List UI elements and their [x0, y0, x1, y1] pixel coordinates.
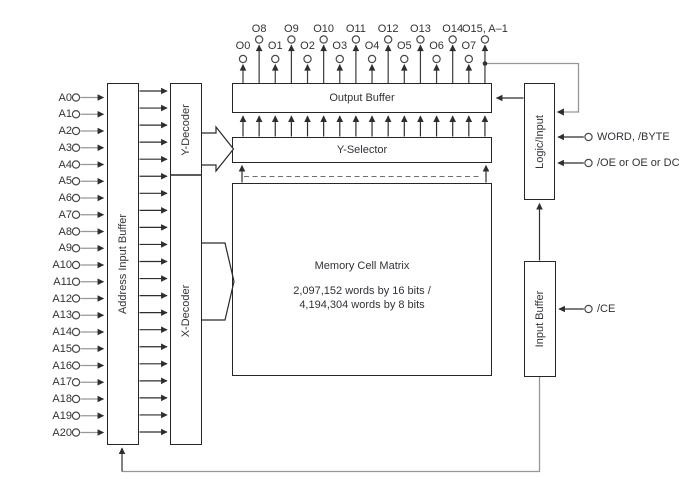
word-byte-label: WORD, /BYTE — [597, 131, 670, 143]
address-pin-label: A18 — [28, 393, 72, 405]
address-terminal-circle — [72, 111, 79, 118]
y-selector-block: Y-Selector — [232, 137, 492, 163]
address-terminal-circle — [72, 211, 79, 218]
output-terminal-circle — [368, 55, 375, 62]
buffer-to-decoder-arrows — [140, 91, 168, 432]
address-terminal-circle — [72, 412, 79, 419]
output-buffer-label: Output Buffer — [233, 84, 491, 112]
word-byte-terminal-circle — [585, 133, 592, 140]
address-pin-label: A3 — [28, 142, 72, 154]
output-pin-label: O7 — [437, 40, 501, 52]
address-terminal-circle — [72, 127, 79, 134]
address-pin-label: A20 — [28, 427, 72, 439]
address-terminal-circle — [72, 194, 79, 201]
output-pin-label: O15, A–1 — [453, 23, 517, 35]
address-pin-label: A0 — [28, 92, 72, 104]
address-pin-label: A6 — [28, 192, 72, 204]
output-terminal-circle — [401, 55, 408, 62]
address-pin-label: A2 — [28, 125, 72, 137]
output-terminal-circle — [304, 55, 311, 62]
junction-dot — [483, 61, 488, 66]
output-terminal-circle — [465, 55, 472, 62]
output-buffer-block: Output Buffer — [232, 83, 492, 113]
address-terminal-circle — [72, 362, 79, 369]
address-pin-label: A14 — [28, 326, 72, 338]
memory-capacity-text: 2,097,152 words by 16 bits / 4,194,304 w… — [233, 284, 491, 312]
oe-label: /OE or OE or DC — [597, 157, 680, 169]
address-pin-label: A19 — [28, 410, 72, 422]
address-pin-label: A12 — [28, 293, 72, 305]
memory-block-diagram: Address Input Buffer Y-Decoder X-Decoder… — [0, 0, 698, 486]
memory-cell-matrix-block: Memory Cell Matrix 2,097,152 words by 16… — [232, 183, 492, 376]
input-buffer-label: Input Buffer — [534, 291, 546, 348]
address-terminal-circle — [72, 278, 79, 285]
memory-capacity-line1: 2,097,152 words by 16 bits / — [233, 284, 491, 298]
address-pin-label: A17 — [28, 376, 72, 388]
ce-label: /CE — [597, 303, 615, 315]
address-terminal-circle — [72, 295, 79, 302]
address-pin-label: A13 — [28, 309, 72, 321]
address-pin-label: A4 — [28, 159, 72, 171]
address-pin-label: A11 — [28, 276, 72, 288]
output-terminal-circle — [239, 55, 246, 62]
decoder-block: Y-Decoder X-Decoder — [170, 83, 202, 445]
address-pin-label: A5 — [28, 175, 72, 187]
x-decoder-bus-arrow — [202, 243, 234, 320]
address-terminal-circle — [72, 245, 79, 252]
address-terminal-circle — [72, 379, 79, 386]
y-decoder-bus-arrow — [202, 127, 234, 171]
address-pin-label: A16 — [28, 360, 72, 372]
address-terminal-circle — [72, 261, 79, 268]
x-decoder-label: X-Decoder — [180, 285, 192, 338]
logic-input-label: Logic/Input — [534, 115, 546, 169]
address-pin-label: A10 — [28, 259, 72, 271]
output-terminal-circle — [433, 55, 440, 62]
address-input-wires — [72, 94, 103, 436]
address-terminal-circle — [72, 312, 79, 319]
ce-terminal-circle — [585, 305, 592, 312]
address-pin-label: A7 — [28, 209, 72, 221]
address-terminal-circle — [72, 345, 79, 352]
y-decoder-label: Y-Decoder — [180, 104, 192, 156]
memory-cell-matrix-title: Memory Cell Matrix — [233, 260, 491, 272]
output-terminal-circle — [272, 55, 279, 62]
oe-terminal-circle — [585, 159, 592, 166]
address-terminal-circle — [72, 395, 79, 402]
address-terminal-circle — [72, 161, 79, 168]
address-terminal-circle — [72, 429, 79, 436]
address-pin-label: A1 — [28, 108, 72, 120]
address-pin-label: A15 — [28, 343, 72, 355]
address-input-buffer-label: Address Input Buffer — [117, 214, 129, 314]
address-terminal-circle — [72, 178, 79, 185]
logic-input-block: Logic/Input — [524, 83, 555, 200]
address-pin-label: A9 — [28, 242, 72, 254]
address-terminal-circle — [72, 328, 79, 335]
output-terminal-circle — [336, 55, 343, 62]
address-terminal-circle — [72, 228, 79, 235]
memory-capacity-line2: 4,194,304 words by 8 bits — [233, 298, 491, 312]
address-pin-label: A8 — [28, 226, 72, 238]
address-input-buffer-block: Address Input Buffer — [107, 83, 139, 445]
address-terminal-circle — [72, 94, 79, 101]
selector-to-buffer-arrows — [243, 116, 485, 137]
input-buffer-block: Input Buffer — [524, 261, 556, 377]
y-selector-label: Y-Selector — [233, 138, 491, 162]
address-terminal-circle — [72, 144, 79, 151]
